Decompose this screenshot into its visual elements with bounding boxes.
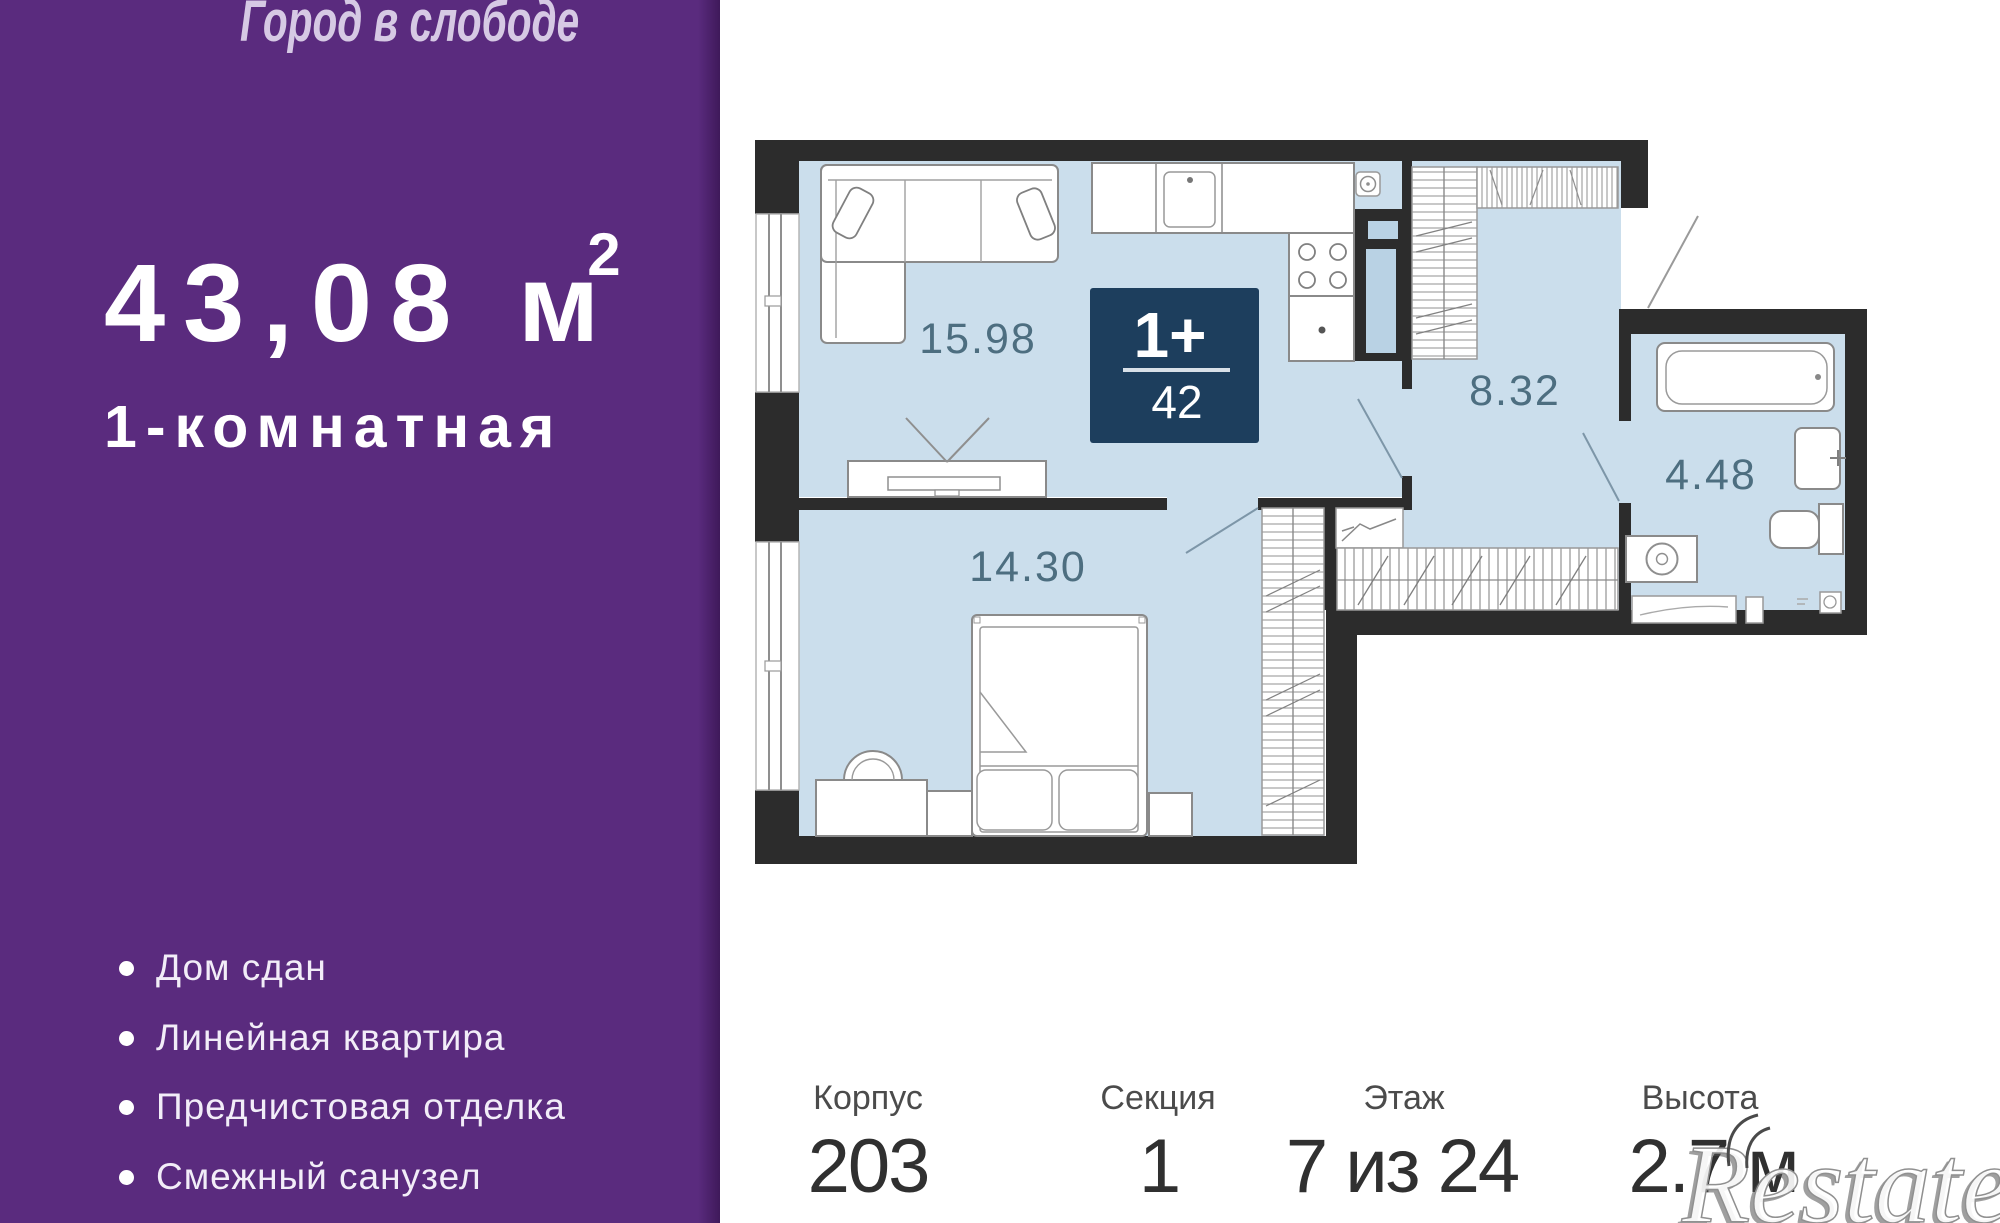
svg-text:14.30: 14.30 <box>969 543 1087 591</box>
svg-text:42: 42 <box>1151 376 1202 428</box>
svg-text:4.48: 4.48 <box>1665 451 1757 499</box>
svg-text:8.32: 8.32 <box>1469 367 1561 415</box>
svg-text:15.98: 15.98 <box>919 315 1037 363</box>
svg-text:1+: 1+ <box>1134 299 1207 371</box>
